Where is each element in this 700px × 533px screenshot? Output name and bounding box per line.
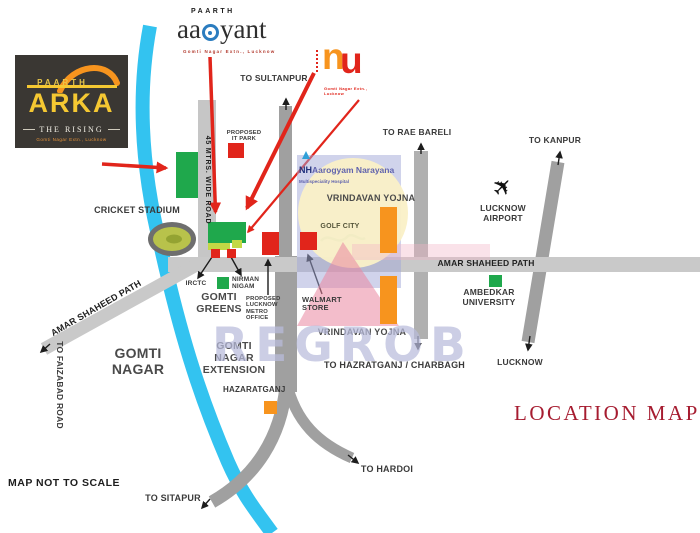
hazaratganj-marker [264,401,277,414]
nu-dotted-mark [316,50,318,72]
label-hazaratganj: HAZARATGANJ [223,386,283,395]
nu-logo: n u Gomti Nagar Extn., Lucknow [316,44,370,96]
label-to-sitapur: TO SITAPUR [144,493,202,503]
regrob-watermark: REGROB [212,318,473,373]
nirman-nigam-marker [227,249,236,258]
irctc-marker [211,249,220,258]
arka-name: ARKA [15,88,128,119]
label-cricket-stadium: CRICKET STADIUM [84,205,190,215]
map-scale-note: MAP NOT TO SCALE [8,478,120,490]
label-it-park: PROPOSED IT PARK [226,130,262,143]
label-to-hardoi: TO HARDOI [358,464,416,474]
hospital-label: NHAarogyam Narayana Multispeciality Hosp… [299,160,394,184]
ambedkar-marker [489,275,502,287]
cricket-stadium-pitch [166,235,182,244]
location-map-canvas: PAARTH ARKA THE RISING Gomti Nagar Extn.… [0,0,700,533]
asp-right-label: AMAR SHAHEED PATH [436,259,536,269]
metro-office-marker [262,232,279,255]
label-to-faizabad: TO FAIZABAD ROAD [54,341,64,429]
vrindavan-marker-1 [380,207,397,253]
label-vrindavan-1: VRINDAVAN YOJNA [326,193,416,203]
aadyant-location: Gomti Nagar Extn., Lucknow [183,49,275,54]
label-to-rae-bareli: TO RAE BARELI [379,128,455,138]
page-title: LOCATION MAP [514,401,700,426]
arka-site-arrow [102,164,166,168]
label-gomti-nagar: GOMTI NAGAR [106,346,170,377]
label-irctc: IRCTC [184,280,208,287]
aadyant-name: aayant [177,14,266,45]
label-gomti-greens: GOMTI GREENS [196,292,242,316]
vrindavan-marker-2 [380,276,397,324]
label-to-sultanpur: TO SULTANPUR [236,74,312,84]
to-sitapur-arrow [202,499,210,508]
nirman-nigam-legend-square [217,277,229,289]
label-golf-city: GOLF CITY [319,223,361,231]
walmart-marker [300,232,317,250]
label-to-kanpur: TO KANPUR [523,136,587,146]
site-green-block [176,152,198,198]
project-site-small [232,240,242,248]
hospital-pin-icon [302,151,310,159]
label-lucknow: LUCKNOW [493,358,547,368]
arka-tagline: THE RISING [23,125,120,134]
it-park-marker [228,143,244,158]
aadyant-logo: PAARTH aayant Gomti Nagar Extn., Lucknow [173,8,291,60]
nu-letter-u: u [340,40,363,82]
arka-logo: PAARTH ARKA THE RISING Gomti Nagar Extn.… [15,55,128,148]
nu-location: Gomti Nagar Extn., Lucknow [324,86,370,96]
label-ambedkar: AMBEDKAR UNIVERSITY [457,288,521,307]
road-to-kanpur [528,162,558,342]
road-45m-label: 45 MTRS. WIDE ROAD [203,136,211,225]
aadyant-drop-icon [202,24,219,41]
label-airport: LUCKNOW AIRPORT [474,204,532,223]
label-walmart: WALMART STORE [302,296,344,313]
arka-location: Gomti Nagar Extn., Lucknow [15,137,128,142]
gomti-river-label-top: GOMTI RIVER [151,80,158,136]
label-nirman-nigam: NIRMAN NIGAM [232,276,264,291]
